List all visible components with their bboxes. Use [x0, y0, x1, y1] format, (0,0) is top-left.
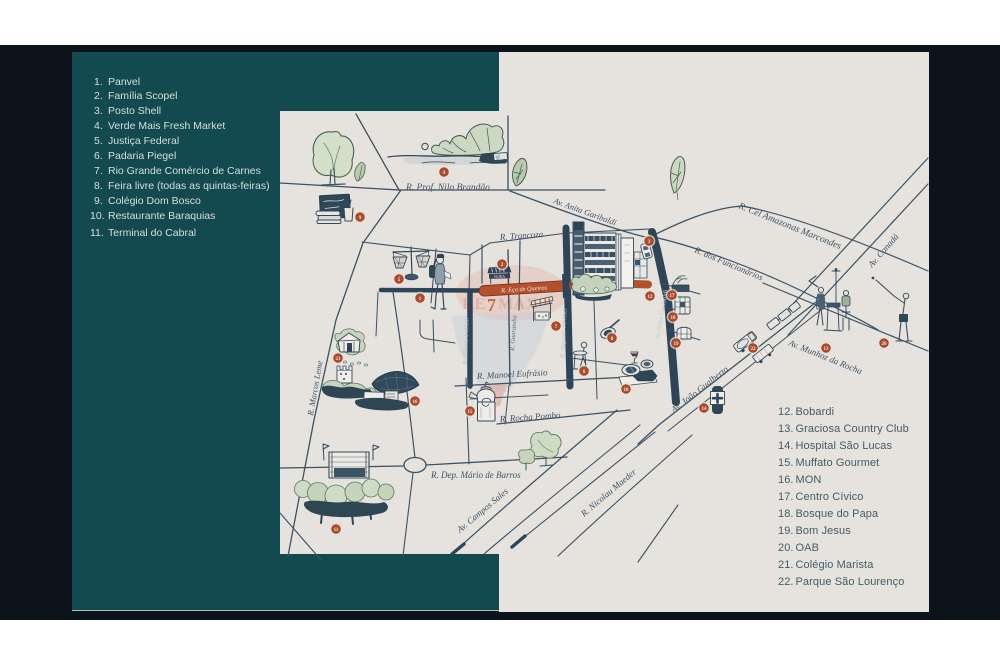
svg-text:R. Marcos Leme: R. Marcos Leme	[305, 360, 325, 418]
svg-text:12: 12	[648, 295, 654, 300]
svg-text:R. Cel Amazonas Marcondes: R. Cel Amazonas Marcondes	[736, 201, 843, 252]
svg-text:21: 21	[336, 357, 342, 362]
svg-text:15: 15	[468, 410, 474, 415]
svg-text:Av. Anita Garibaldi: Av. Anita Garibaldi	[551, 195, 618, 228]
svg-text:14: 14	[702, 407, 708, 412]
svg-text:R. Rocha Pombo: R. Rocha Pombo	[498, 410, 561, 424]
svg-text:22: 22	[751, 347, 757, 352]
svg-text:R. Dep. Mário de Barros: R. Dep. Mário de Barros	[430, 470, 521, 480]
svg-text:10: 10	[624, 388, 630, 393]
svg-text:20: 20	[882, 342, 888, 347]
svg-text:17: 17	[670, 294, 676, 299]
svg-text:13: 13	[824, 347, 830, 352]
svg-text:Av. Campos Sales: Av. Campos Sales	[454, 486, 510, 535]
svg-text:18: 18	[671, 316, 677, 321]
svg-text:7: 7	[487, 295, 496, 315]
svg-text:R. dos Funcionários: R. dos Funcionários	[692, 244, 765, 282]
svg-text:FEIRA: FEIRA	[494, 275, 505, 279]
svg-text:11: 11	[334, 528, 339, 533]
svg-text:R. Nicolau Maeder: R. Nicolau Maeder	[578, 466, 638, 519]
svg-text:16: 16	[413, 400, 419, 405]
svg-text:R. Trancoza: R. Trancoza	[498, 229, 544, 242]
svg-text:Av. Canadá: Av. Canadá	[865, 231, 901, 270]
svg-text:R. Prof. Nilo Brandão: R. Prof. Nilo Brandão	[405, 182, 490, 193]
svg-text:19: 19	[674, 342, 680, 347]
svg-text:RE: RE	[462, 296, 486, 313]
